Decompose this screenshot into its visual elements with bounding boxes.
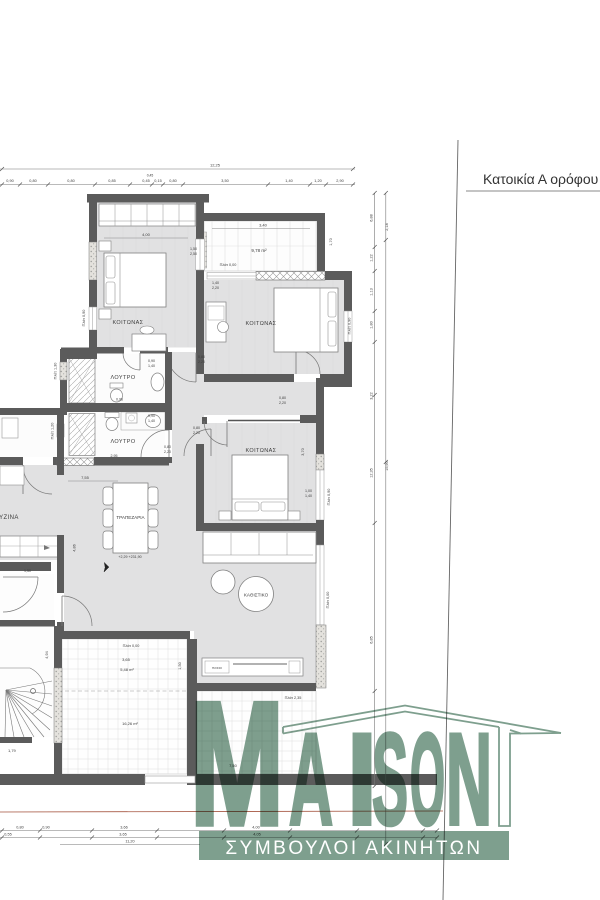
svg-text:0,45: 0,45	[142, 179, 149, 183]
svg-text:3,50: 3,50	[221, 179, 228, 183]
svg-text:2,20: 2,20	[279, 401, 286, 405]
svg-text:0,55: 0,55	[4, 833, 11, 837]
svg-text:0,80: 0,80	[67, 179, 74, 183]
svg-text:1,70: 1,70	[329, 238, 333, 245]
svg-text:6,88: 6,88	[370, 214, 374, 221]
svg-text:ΛΟΥΤΡΟ: ΛΟΥΤΡΟ	[110, 375, 135, 381]
svg-text:3,22: 3,22	[370, 392, 374, 399]
svg-text:Πλάτ 0,90: Πλάτ 0,90	[348, 318, 352, 335]
svg-text:0,80: 0,80	[164, 445, 171, 449]
svg-text:15,90: 15,90	[385, 461, 389, 471]
svg-text:Πλάτ 0,90: Πλάτ 0,90	[327, 489, 331, 506]
svg-text:1,40: 1,40	[148, 364, 155, 368]
svg-text:0,85: 0,85	[108, 179, 115, 183]
svg-text:3,65: 3,65	[122, 657, 131, 662]
svg-text:ΤΡΑΠΕΖΑΡΙΑ: ΤΡΑΠΕΖΑΡΙΑ	[116, 515, 145, 520]
svg-text:Πλάτ 1,30: Πλάτ 1,30	[54, 363, 58, 380]
svg-text:O: O	[410, 706, 445, 852]
svg-text:0,90: 0,90	[148, 359, 155, 363]
svg-text:0,80: 0,80	[29, 179, 36, 183]
svg-text:4,00: 4,00	[142, 232, 151, 237]
svg-text:1,40: 1,40	[305, 494, 312, 498]
svg-text:1,20: 1,20	[314, 179, 321, 183]
svg-text:2,20: 2,20	[164, 450, 171, 454]
svg-text:2,20: 2,20	[193, 431, 200, 435]
svg-text:1,50: 1,50	[190, 247, 197, 251]
svg-text:16,26 m²: 16,26 m²	[122, 721, 138, 726]
svg-text:Πλάτ 0,00: Πλάτ 0,00	[326, 592, 330, 609]
svg-text:6,85: 6,85	[370, 636, 374, 643]
svg-text:4,94: 4,94	[45, 651, 49, 658]
svg-text:0,45: 0,45	[147, 174, 154, 178]
svg-text:ΚΟΙΤΩΝΑΣ: ΚΟΙΤΩΝΑΣ	[246, 321, 277, 327]
svg-text:Πλάτ 1,20: Πλάτ 1,20	[51, 423, 55, 440]
svg-text:1,40: 1,40	[212, 281, 219, 285]
svg-text:0,90: 0,90	[148, 414, 155, 418]
svg-text:ΚΟΙΤΩΝΑΣ: ΚΟΙΤΩΝΑΣ	[246, 448, 277, 454]
svg-text:ΚΟΙΤΩΝΑΣ: ΚΟΙΤΩΝΑΣ	[113, 320, 144, 326]
svg-text:3,66: 3,66	[120, 826, 127, 830]
svg-text:0,96: 0,96	[116, 398, 123, 402]
svg-text:1,40: 1,40	[148, 419, 155, 423]
svg-text:3,65: 3,65	[119, 833, 126, 837]
svg-text:1,22: 1,22	[370, 254, 374, 261]
svg-text:Πλάτ 2,35: Πλάτ 2,35	[285, 696, 302, 700]
svg-text:N: N	[446, 706, 492, 852]
svg-text:0,80: 0,80	[279, 396, 286, 400]
svg-text:1,40: 1,40	[285, 179, 292, 183]
svg-text:5,48 m²: 5,48 m²	[120, 667, 134, 672]
svg-text:1,00: 1,00	[305, 489, 312, 493]
svg-text:4,86: 4,86	[73, 544, 77, 551]
svg-text:0,90: 0,90	[42, 826, 49, 830]
svg-text:0,80: 0,80	[198, 355, 205, 359]
svg-text:2,18: 2,18	[385, 223, 389, 230]
svg-text:7,55: 7,55	[81, 475, 90, 480]
svg-text:Πλάτ 0,00: Πλάτ 0,00	[123, 644, 140, 648]
svg-text:S: S	[372, 706, 408, 852]
svg-text:0,15: 0,15	[154, 179, 161, 183]
svg-text:1,13: 1,13	[370, 288, 374, 295]
svg-text:2,20: 2,20	[212, 286, 219, 290]
svg-text:2,90: 2,90	[336, 179, 343, 183]
svg-text:12,25: 12,25	[210, 163, 221, 168]
svg-text:9,78 m²: 9,78 m²	[251, 248, 267, 253]
svg-text:12,35: 12,35	[370, 468, 374, 478]
svg-text:3,70: 3,70	[301, 448, 305, 455]
svg-text:ΚΟΥΖΙΝΑ: ΚΟΥΖΙΝΑ	[0, 515, 19, 521]
svg-text:0,80: 0,80	[193, 426, 200, 430]
svg-text:1,50: 1,50	[178, 662, 182, 669]
svg-text:0,90: 0,90	[6, 179, 13, 183]
svg-text:0,80: 0,80	[169, 179, 176, 183]
svg-text:ΚΑΘΙΣΤΙΚΟ: ΚΑΘΙΣΤΙΚΟ	[244, 593, 269, 598]
svg-text:Κατοικία Α ορόφου: Κατοικία Α ορόφου	[483, 171, 598, 187]
svg-text:ΣΥΜΒΟΥΛΟΙ ΑΚΙΝΗΤΩΝ: ΣΥΜΒΟΥΛΟΙ ΑΚΙΝΗΤΩΝ	[225, 838, 482, 859]
svg-text:1,50: 1,50	[24, 569, 31, 573]
svg-text:Πλάτ 0,00: Πλάτ 0,00	[220, 263, 237, 267]
svg-text:3,40: 3,40	[259, 223, 268, 228]
svg-text:Πλάτ 0,90: Πλάτ 0,90	[82, 310, 86, 327]
svg-text:0,80: 0,80	[16, 826, 23, 830]
svg-text:2,20: 2,20	[198, 360, 205, 364]
svg-text:1,80: 1,80	[370, 321, 374, 328]
svg-text:+2,29 +231,90: +2,29 +231,90	[118, 555, 141, 559]
svg-text:11,20: 11,20	[125, 840, 134, 844]
svg-text:ΛΟΥΤΡΟ: ΛΟΥΤΡΟ	[110, 439, 135, 445]
svg-text:1,79: 1,79	[8, 748, 17, 753]
svg-text:2,50: 2,50	[190, 252, 197, 256]
